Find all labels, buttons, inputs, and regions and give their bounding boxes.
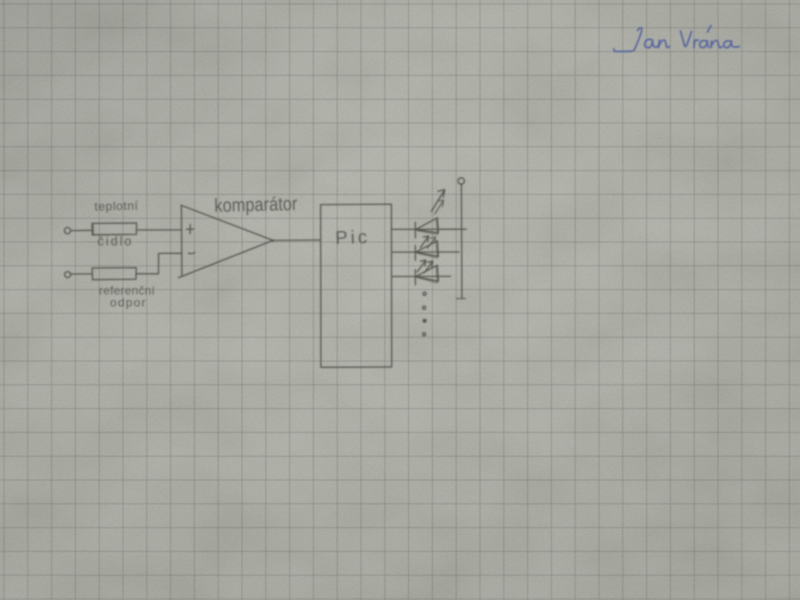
svg-text:teplotní: teplotní [94,199,138,214]
svg-text:Pic: Pic [335,226,370,248]
svg-text:komparátor: komparátor [214,194,298,217]
svg-text:odpor: odpor [110,296,147,310]
svg-text:čidlo: čidlo [98,235,134,249]
